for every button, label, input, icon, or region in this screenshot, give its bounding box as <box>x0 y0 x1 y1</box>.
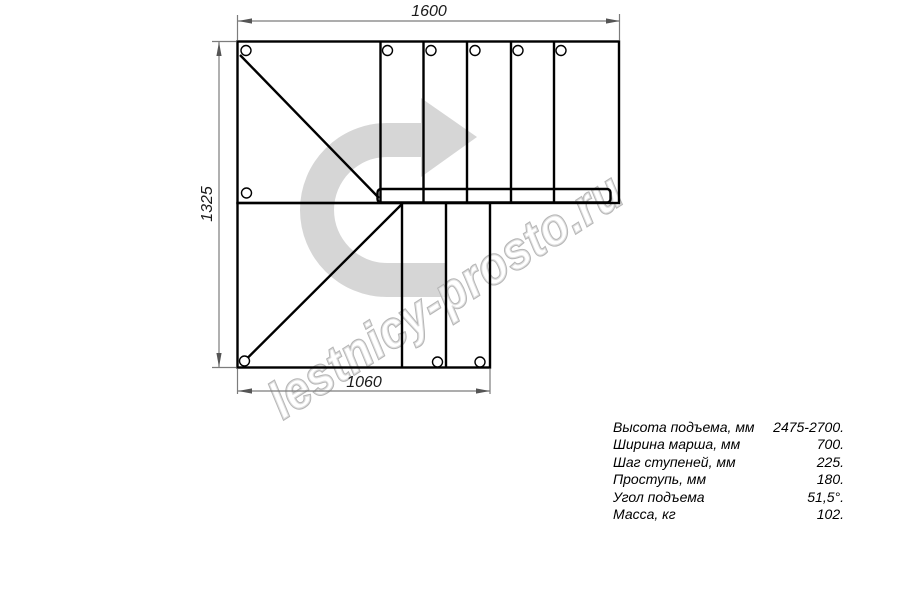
spec-label: Высота подъема, мм <box>613 419 755 436</box>
spec-label: Ширина марша, мм <box>613 436 740 453</box>
spec-table: Высота подъема, мм 2475-2700. Ширина мар… <box>613 419 844 523</box>
spec-label: Шаг ступеней, мм <box>613 454 736 471</box>
spec-row: Масса, кг 102. <box>613 506 844 523</box>
spec-value: 51,5°. <box>807 489 844 506</box>
spec-value: 180. <box>817 471 844 488</box>
spec-row: Проступь, мм 180. <box>613 471 844 488</box>
spec-value: 102. <box>817 506 844 523</box>
spec-value: 2475-2700. <box>773 419 844 436</box>
spec-label: Проступь, мм <box>613 471 706 488</box>
dimension-top-label: 1600 <box>411 3 447 20</box>
spec-label: Угол подъема <box>613 489 705 506</box>
spec-label: Масса, кг <box>613 506 676 523</box>
upper-tread-lines <box>381 42 555 204</box>
spec-value: 700. <box>817 436 844 453</box>
dimension-left-label: 1325 <box>199 186 216 222</box>
spec-row: Угол подъема 51,5°. <box>613 489 844 506</box>
dimension-bottom-label: 1060 <box>346 374 382 391</box>
spec-row: Ширина марша, мм 700. <box>613 436 844 453</box>
spec-row: Шаг ступеней, мм 225. <box>613 454 844 471</box>
spec-value: 225. <box>817 454 844 471</box>
spec-row: Высота подъема, мм 2475-2700. <box>613 419 844 436</box>
